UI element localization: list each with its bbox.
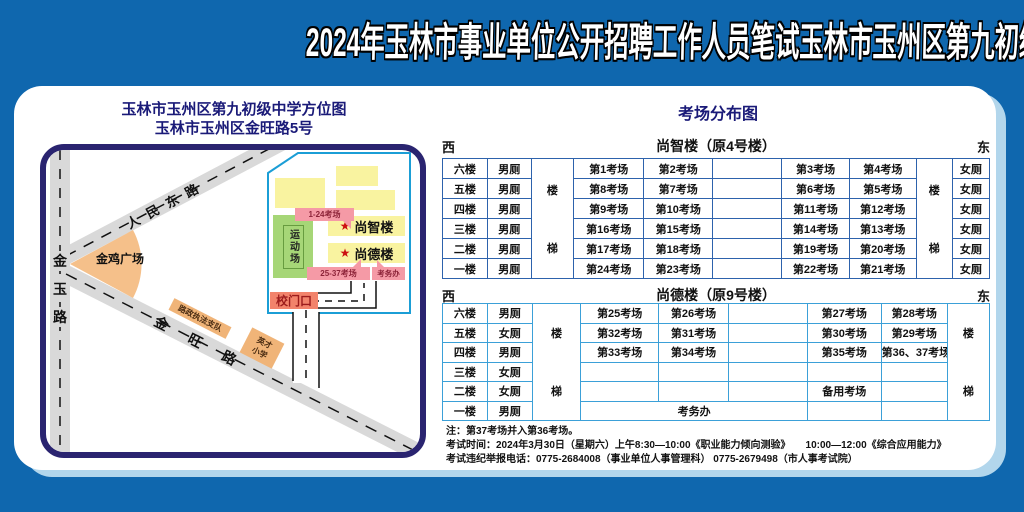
stairs-label-top: 楼 <box>551 325 562 341</box>
room-cell: 第21考场 <box>849 259 916 279</box>
room-cell <box>881 382 947 402</box>
building2-header: 西 尚德楼（原9号楼） 东 <box>442 285 990 305</box>
callout-rooms-25-37: 25-37考场 <box>307 267 370 280</box>
room-cell: 第18考场 <box>644 239 713 259</box>
campus-building-a <box>275 178 325 208</box>
exam-office-cell: 考务办 <box>581 401 807 421</box>
toilet-cell: 男厕 <box>487 401 532 421</box>
room-cell: 第28考场 <box>881 304 947 324</box>
room-cell: 第19考场 <box>782 239 850 259</box>
note-merge: 注：第37考场并入第36考场。 <box>446 425 992 439</box>
map-title-line1: 玉林市玉州区第九初级中学方位图 <box>40 98 428 119</box>
note-exam-time: 考试时间：2024年3月30日（星期六）上午8:30—10:00《职业能力倾向测… <box>446 439 992 453</box>
toilet-cell: 男厕 <box>487 304 532 324</box>
toilet-cell: 女厕 <box>952 239 989 259</box>
stairs-label-bottom: 梯 <box>551 383 562 399</box>
floor-cell: 五楼 <box>443 179 488 199</box>
floor-cell: 二楼 <box>443 239 488 259</box>
floor-cell: 四楼 <box>443 343 488 363</box>
content-card: 玉林市玉州区第九初级中学方位图 玉林市玉州区金旺路5号 <box>14 86 996 470</box>
toilet-cell: 男厕 <box>487 179 531 199</box>
room-cell: 第24考场 <box>574 259 644 279</box>
building1-name: 尚智楼（原4号楼） <box>656 136 776 156</box>
toilet-cell: 女厕 <box>952 159 989 179</box>
kaowu-office-label: 考务办 <box>372 267 405 280</box>
toilet-cell: 男厕 <box>487 199 531 219</box>
table-row: 二楼 男厕 第17考场 第18考场 第19考场 第20考场 女厕 <box>443 239 990 259</box>
room-cell: 第2考场 <box>644 159 713 179</box>
toilet-cell: 女厕 <box>487 323 532 343</box>
jinyu-road-char1: 金 <box>50 251 70 271</box>
floor-cell: 三楼 <box>443 219 488 239</box>
stairs-label-bottom: 梯 <box>547 240 558 256</box>
stairs-label-top: 楼 <box>547 182 558 198</box>
table-row: 五楼 女厕 第32考场 第31考场 第30考场 第29考场 <box>443 323 990 343</box>
table-row: 五楼 男厕 第8考场 第7考场 第6考场 第5考场 女厕 <box>443 179 990 199</box>
room-cell: 第4考场 <box>849 159 916 179</box>
school-gate-label: 校门口 <box>270 292 318 309</box>
room-cell: 第29考场 <box>881 323 947 343</box>
corridor-cell <box>729 343 808 363</box>
footnotes: 注：第37考场并入第36考场。 考试时间：2024年3月30日（星期六）上午8:… <box>446 425 992 467</box>
room-cell: 第3考场 <box>782 159 850 179</box>
corridor-cell <box>713 199 782 219</box>
east-label: 东 <box>977 286 990 305</box>
floor-cell: 五楼 <box>443 323 488 343</box>
table-row: 三楼 女厕 <box>443 362 990 382</box>
jinji-square-label: 金鸡广场 <box>84 250 156 267</box>
table-row: 四楼 男厕 第33考场 第34考场 第35考场 第36、37考场 <box>443 343 990 363</box>
room-cell: 第35考场 <box>807 343 881 363</box>
room-cell: 第14考场 <box>782 219 850 239</box>
room-cell <box>881 362 947 382</box>
shangzhi-building-label: 尚智楼 <box>354 217 393 236</box>
corridor-cell <box>713 159 782 179</box>
table-row: 四楼 男厕 第9考场 第10考场 第11考场 第12考场 女厕 <box>443 199 990 219</box>
room-cell: 第32考场 <box>581 323 659 343</box>
table-row: 一楼 男厕 第24考场 第23考场 第22考场 第21考场 女厕 <box>443 259 990 279</box>
west-label: 西 <box>442 286 455 305</box>
stairs-cell-west: 楼 梯 <box>532 304 581 421</box>
room-cell: 第22考场 <box>782 259 850 279</box>
room-cell <box>659 382 729 402</box>
toilet-cell: 男厕 <box>487 239 531 259</box>
stairs-label-bottom: 梯 <box>929 240 940 256</box>
room-cell: 第36、37考场 <box>881 343 947 363</box>
east-label: 东 <box>977 137 990 156</box>
room-cell: 第25考场 <box>581 304 659 324</box>
room-cell: 第1考场 <box>574 159 644 179</box>
poster-title: 2024年玉林市事业单位公开招聘工作人员笔试玉林市玉州区第九初级中学考点考场示意… <box>305 16 1024 70</box>
corridor-cell <box>713 259 782 279</box>
toilet-cell: 女厕 <box>952 219 989 239</box>
note-report-phone: 考试违纪举报电话：0775-2684008（事业单位人事管理科） 0775-26… <box>446 453 992 467</box>
stairs-label-bottom: 梯 <box>963 383 974 399</box>
room-cell <box>581 382 659 402</box>
room-cell: 第11考场 <box>782 199 850 219</box>
floor-cell: 一楼 <box>443 401 488 421</box>
sports-field-label: 运动场 <box>283 225 304 269</box>
toilet-cell: 男厕 <box>487 343 532 363</box>
room-cell: 第9考场 <box>574 199 644 219</box>
stairs-cell-east: 楼 梯 <box>947 304 989 421</box>
room-cell: 第31考场 <box>659 323 729 343</box>
west-label: 西 <box>442 137 455 156</box>
callout-rooms-1-24: 1-24考场 <box>295 208 354 221</box>
room-cell: 第6考场 <box>782 179 850 199</box>
table-row: 六楼 男厕 楼 梯 第1考场 第2考场 第3考场 第4考场 楼 梯 女厕 <box>443 159 990 179</box>
room-cell: 第12考场 <box>849 199 916 219</box>
room-cell: 第16考场 <box>574 219 644 239</box>
room-cell: 第5考场 <box>849 179 916 199</box>
floor-cell: 六楼 <box>443 304 488 324</box>
room-cell <box>807 362 881 382</box>
room-cell: 第27考场 <box>807 304 881 324</box>
corridor-cell <box>729 323 808 343</box>
corridor-cell <box>729 304 808 324</box>
room-cell <box>659 362 729 382</box>
room-cell <box>807 401 881 421</box>
room-cell: 第8考场 <box>574 179 644 199</box>
room-cell <box>581 362 659 382</box>
room-cell <box>881 401 947 421</box>
corridor-cell <box>729 362 808 382</box>
room-cell: 第15考场 <box>644 219 713 239</box>
room-cell: 第20考场 <box>849 239 916 259</box>
location-map: 金 玉 路 人民东路 金旺路 金鸡广场 路政执法支队 英才 小学 ★ 尚智楼 ★… <box>40 144 426 458</box>
corridor-cell <box>713 179 782 199</box>
table-shangde: 六楼 男厕 楼 梯 第25考场 第26考场 第27考场 第28考场 楼 梯 五楼 <box>442 303 990 421</box>
table-row: 六楼 男厕 楼 梯 第25考场 第26考场 第27考场 第28考场 楼 梯 <box>443 304 990 324</box>
table-shangzhi: 六楼 男厕 楼 梯 第1考场 第2考场 第3考场 第4考场 楼 梯 女厕 <box>442 158 990 279</box>
room-cell: 备用考场 <box>807 382 881 402</box>
jinyu-road-char3: 路 <box>50 307 70 327</box>
toilet-cell: 女厕 <box>952 199 989 219</box>
room-cell: 第17考场 <box>574 239 644 259</box>
toilet-cell: 女厕 <box>952 259 989 279</box>
jinyu-road-char2: 玉 <box>50 279 70 299</box>
map-title-line2: 玉林市玉州区金旺路5号 <box>40 117 428 138</box>
toilet-cell: 男厕 <box>487 159 531 179</box>
room-cell: 第13考场 <box>849 219 916 239</box>
table-row: 二楼 女厕 备用考场 <box>443 382 990 402</box>
stairs-label-top: 楼 <box>963 325 974 341</box>
corridor-cell <box>713 219 782 239</box>
room-cell: 第33考场 <box>581 343 659 363</box>
campus-building-b <box>336 166 378 186</box>
floor-cell: 三楼 <box>443 362 488 382</box>
shangde-building: ★ 尚德楼 <box>328 243 405 263</box>
table-row: 一楼 男厕 考务办 <box>443 401 990 421</box>
toilet-cell: 男厕 <box>487 259 531 279</box>
stairs-cell-west: 楼 梯 <box>531 159 574 279</box>
floor-cell: 二楼 <box>443 382 488 402</box>
room-cell: 第7考场 <box>644 179 713 199</box>
toilet-cell: 女厕 <box>487 382 532 402</box>
stairs-label-top: 楼 <box>929 182 940 198</box>
toilet-cell: 女厕 <box>487 362 532 382</box>
floor-cell: 一楼 <box>443 259 488 279</box>
campus-building-c <box>336 190 395 210</box>
room-cell: 第30考场 <box>807 323 881 343</box>
building1-header: 西 尚智楼（原4号楼） 东 <box>442 136 990 156</box>
room-cell: 第10考场 <box>644 199 713 219</box>
corridor-cell <box>713 239 782 259</box>
toilet-cell: 女厕 <box>952 179 989 199</box>
table-row: 三楼 男厕 第16考场 第15考场 第14考场 第13考场 女厕 <box>443 219 990 239</box>
room-cell: 第23考场 <box>644 259 713 279</box>
star-icon: ★ <box>340 246 351 260</box>
floor-cell: 六楼 <box>443 159 488 179</box>
room-cell: 第34考场 <box>659 343 729 363</box>
title-banner: 2024年玉林市事业单位公开招聘工作人员笔试玉林市玉州区第九初级中学考点考场示意… <box>0 16 1024 70</box>
distribution-title: 考场分布图 <box>444 100 992 124</box>
room-cell: 第26考场 <box>659 304 729 324</box>
corridor-cell <box>729 382 808 402</box>
toilet-cell: 男厕 <box>487 219 531 239</box>
stairs-cell-east: 楼 梯 <box>916 159 952 279</box>
floor-cell: 四楼 <box>443 199 488 219</box>
building2-name: 尚德楼（原9号楼） <box>656 285 776 305</box>
